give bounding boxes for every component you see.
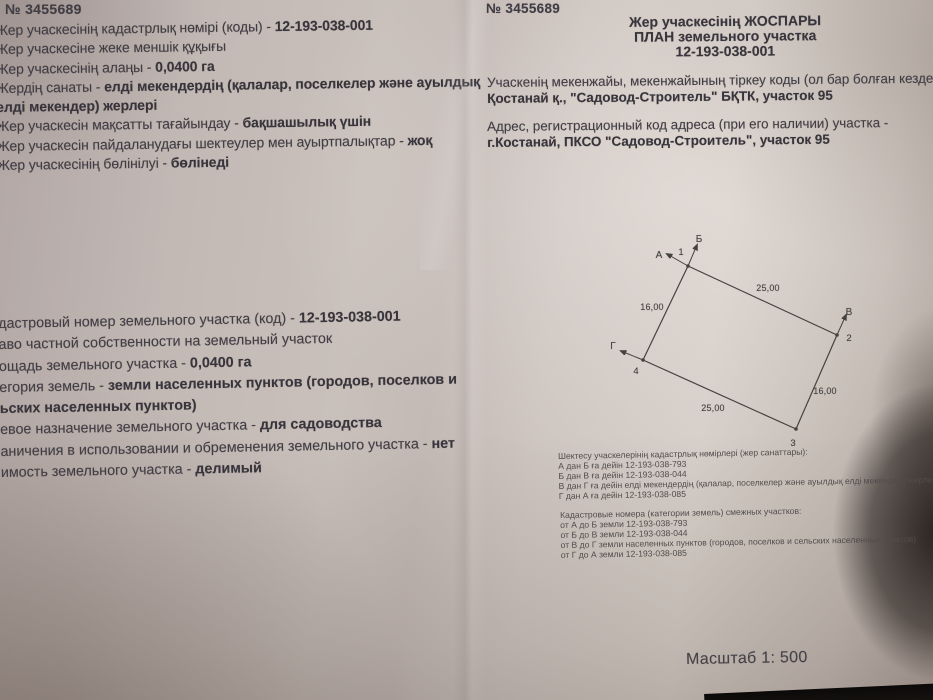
info-value: 0,0400 га	[155, 58, 215, 75]
map-scale: Масштаб 1: 500	[686, 649, 808, 669]
info-label: егория земель -	[0, 378, 108, 396]
info-value: земли населенных пунктов (городов, посел…	[108, 371, 457, 393]
adjacent-parcels-russian: Кадастровые номера (категории земель) см…	[560, 505, 916, 561]
address-value: г.Костанай, ПКСО "Садовод-Строитель", уч…	[487, 131, 888, 151]
dimension-left: 16,00	[640, 302, 664, 312]
direction-label-g: Г	[610, 341, 616, 352]
info-label: аво частной собственности на земельный у…	[0, 331, 332, 353]
dimension-top: 25,00	[756, 283, 780, 293]
info-label: дастровый номер земельного участка (код)…	[0, 310, 299, 332]
plot-edge-right	[796, 335, 837, 429]
arrow-g-icon	[621, 351, 643, 360]
plot-edge-top	[688, 266, 837, 335]
info-label: Жер учаскесін пайдаланудағы шектеулер ме…	[0, 132, 408, 154]
arrow-v-icon	[837, 315, 846, 335]
vertex-dot-4	[641, 358, 645, 362]
vertex-label-1: 1	[678, 247, 683, 258]
left-info-russian: дастровый номер земельного участка (код)…	[0, 306, 459, 485]
direction-label-v: В	[846, 307, 853, 318]
info-label: Жер учаскесінің бөлінілуі -	[0, 155, 171, 173]
direction-label-b: Б	[696, 234, 703, 245]
info-label: евое назначение земельного участка -	[0, 418, 260, 439]
right-doc-number: № 3455689	[486, 1, 560, 16]
info-value: 12-193-038-001	[299, 309, 401, 327]
vertex-label-2: 2	[846, 333, 851, 344]
info-value: 0,0400 га	[190, 354, 252, 371]
info-value: 12-193-038-001	[275, 17, 373, 34]
vertex-dot-3	[794, 427, 798, 431]
left-info-kazakh: Жер учаскесінің кадастрлық нөмірі (коды)…	[0, 14, 481, 175]
dimension-right: 16,00	[813, 386, 837, 396]
info-label: ощадь земельного участка -	[0, 355, 190, 374]
vertex-dot-1	[686, 264, 690, 268]
plan-cadastral-code: 12-193-038-001	[530, 42, 920, 60]
document-photo: № 3455689 Жер учаскесінің кадастрлық нөм…	[0, 0, 933, 700]
plan-title: Жер учаскесінің ЖОСПАРЫ ПЛАН земельного …	[530, 12, 920, 60]
info-value: ьских населенных пунктов)	[0, 398, 197, 418]
address-kazakh: Учаскенің мекенжайы, мекенжайының тіркеу…	[487, 71, 933, 108]
adjacent-parcels-kazakh: Шектесу учаскелерінің кадастрлық нөмірле…	[558, 445, 933, 501]
info-value: делимый	[195, 460, 262, 477]
info-label: имость земельного участка -	[1, 461, 196, 481]
plot-plan-diagram: А Б В Г 1 2 3 4 25,00 16,00 16,00 25,00	[600, 230, 870, 460]
info-label: Жер учаскесінің алаңы -	[0, 58, 155, 76]
vertex-dot-2	[835, 333, 839, 337]
vertex-label-4: 4	[633, 366, 638, 377]
dimension-bottom: 25,00	[701, 403, 725, 413]
left-doc-number: № 3455689	[5, 1, 82, 17]
info-value: нет	[431, 435, 455, 451]
info-value: елді мекендер) жерлері	[0, 97, 157, 115]
info-value: бақшашылық үшін	[242, 113, 371, 131]
info-label: Жердің санаты -	[0, 78, 104, 96]
info-label: Жер учаскесінің кадастрлық нөмірі (коды)…	[0, 18, 275, 38]
address-russian: Адрес, регистрационный код адреса (при е…	[487, 115, 889, 151]
info-label: Жер учаскесіне жеке меншік құқығы	[0, 38, 226, 57]
plot-edge-bottom	[643, 360, 796, 429]
plot-edge-left	[643, 266, 688, 360]
info-value: для садоводства	[260, 415, 382, 433]
right-page: № 3455689 Жер учаскесінің ЖОСПАРЫ ПЛАН з…	[470, 0, 933, 700]
info-value: бөлінеді	[171, 154, 229, 171]
address-value: Қостанай қ., "Садовод-Строитель" БҚТК, у…	[487, 87, 933, 107]
info-label: Жер учаскесін мақсатты тағайындау -	[0, 115, 243, 134]
direction-label-a: А	[656, 250, 663, 261]
arrow-b-icon	[688, 245, 697, 266]
